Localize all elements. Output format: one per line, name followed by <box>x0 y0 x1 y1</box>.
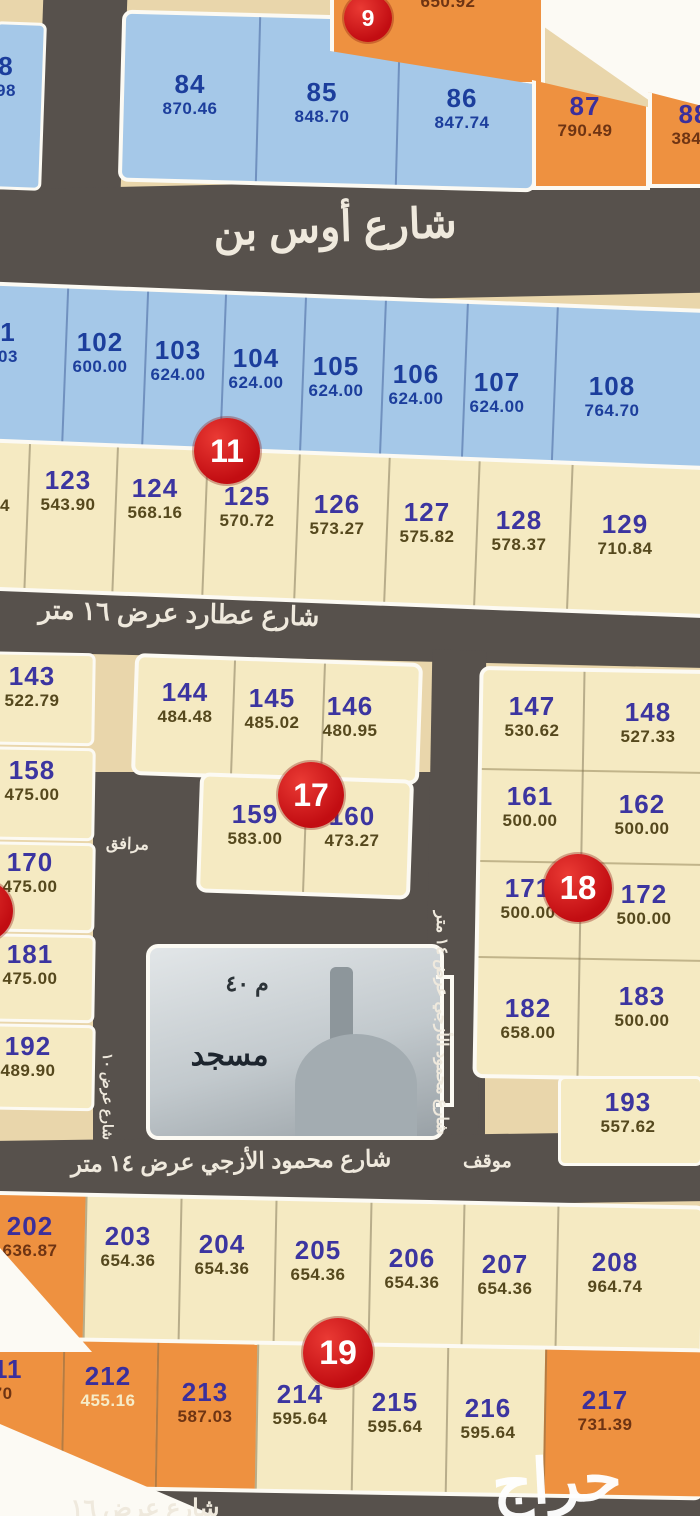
plot-label-162: 162500.00 <box>615 790 670 838</box>
plot-label-214: 214595.64 <box>273 1380 328 1428</box>
block-topleft-partial <box>0 21 47 191</box>
plot-label-8: 898 <box>0 52 16 100</box>
plot-label-211: 211.70 <box>0 1355 22 1403</box>
plot-label-170: 170475.00 <box>3 848 58 896</box>
street-bottom-label: شارع عرض ١٦ <box>15 1494 275 1516</box>
subdivision-map: م ٤٠ مسجد شارع أوس بن شارع عطارد عرض ١٦ … <box>0 0 700 1516</box>
plot-label-103: 103624.00 <box>151 336 206 384</box>
mosque-dome <box>295 1034 417 1136</box>
plot-label-147: 147530.62 <box>505 692 560 740</box>
plot-label-129: 129710.84 <box>598 510 653 558</box>
plot-label-84: 84870.46 <box>163 70 218 118</box>
plot-label-158: 158475.00 <box>5 756 60 804</box>
plot-label-124: 124568.16 <box>128 474 183 522</box>
plot-label-108: 108764.70 <box>585 372 640 420</box>
block-badge-17: 17 <box>278 762 344 828</box>
plot-label-fragment: 650.92 <box>421 0 476 11</box>
plot-label-216: 216595.64 <box>461 1394 516 1442</box>
mosque-block: م ٤٠ مسجد <box>146 944 444 1140</box>
plot-label-213: 213587.03 <box>178 1378 233 1426</box>
plot-label-212: 212455.16 <box>81 1362 136 1410</box>
plot-label-203: 203654.36 <box>101 1222 156 1270</box>
plot-label-143: 143522.79 <box>5 662 60 710</box>
plot-label-182: 182658.00 <box>501 994 556 1042</box>
plot-label-148: 148527.33 <box>621 698 676 746</box>
plot-label-204: 204654.36 <box>195 1230 250 1278</box>
plot-label-146: 146480.95 <box>323 692 378 740</box>
plot-label-105: 105624.00 <box>309 352 364 400</box>
plot-label-208: 208964.74 <box>588 1248 643 1296</box>
street-mahmoud-vertical-label: شارع محمود الأزجي عرض ١٤ متر <box>432 665 451 1135</box>
street-side-vertical-label: شارع عرض ١٠ <box>100 940 116 1140</box>
plot-label-106: 106624.00 <box>389 360 444 408</box>
utilities-label: مرافق <box>106 833 150 854</box>
parking-label: موقف <box>463 1150 512 1173</box>
block-badge-11: 11 <box>194 418 260 484</box>
plot-label-159: 159583.00 <box>228 800 283 848</box>
plot-label-192: 192489.90 <box>1 1032 56 1080</box>
plot-label-88: 88384.1 <box>671 100 700 148</box>
plot-label-181: 181475.00 <box>3 940 58 988</box>
plot-label-126: 126573.27 <box>310 490 365 538</box>
plot-label-127: 127575.82 <box>400 498 455 546</box>
plot-label-102: 102600.00 <box>73 328 128 376</box>
plot-label-125: 125570.72 <box>220 482 275 530</box>
mosque-name-label: مسجد <box>191 1038 269 1073</box>
plot-label-104: 104624.00 <box>229 344 284 392</box>
plot-label-217: 217731.39 <box>578 1386 633 1434</box>
plot-label-161: 161500.00 <box>503 782 558 830</box>
plot-label-85: 85848.70 <box>295 78 350 126</box>
plot-label-145: 145485.02 <box>245 684 300 732</box>
plot-label-193: 193557.62 <box>601 1088 656 1136</box>
plot-label-172: 172500.00 <box>617 880 672 928</box>
plot-label-205: 205654.36 <box>291 1236 346 1284</box>
plot-label-183: 183500.00 <box>615 982 670 1030</box>
block-badge-18: 18 <box>544 854 612 922</box>
plot-label-206: 206654.36 <box>385 1244 440 1292</box>
plot-label-144: 144484.48 <box>158 678 213 726</box>
block-badge-19: 19 <box>303 1318 373 1388</box>
plot-label-87: 87790.49 <box>558 92 613 140</box>
plot-label-86: 86847.74 <box>435 84 490 132</box>
plot-label-107: 107624.00 <box>470 368 525 416</box>
plot-label-207: 207654.36 <box>478 1250 533 1298</box>
watermark-logo: حراج <box>490 1441 623 1516</box>
plot-label-202: 202636.87 <box>3 1212 58 1260</box>
plot-label-123: 123543.90 <box>41 466 96 514</box>
plot-label-fragment: 4 <box>0 496 10 515</box>
plot-label-215: 215595.64 <box>368 1388 423 1436</box>
street-vertical-topleft <box>37 0 128 195</box>
plot-label-1: 103 <box>0 318 18 366</box>
mosque-size-label: م ٤٠ <box>225 971 268 997</box>
plot-label-128: 128578.37 <box>492 506 547 554</box>
